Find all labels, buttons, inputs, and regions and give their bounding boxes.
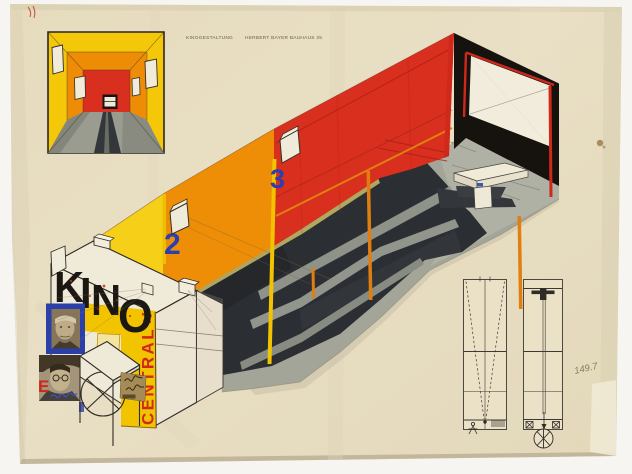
svg-text:HERBERT BAYER BAUHAUS 25: HERBERT BAYER BAUHAUS 25 xyxy=(245,35,322,41)
svg-text:O: O xyxy=(118,290,153,342)
svg-text:E: E xyxy=(38,377,49,396)
svg-text:3: 3 xyxy=(270,164,285,194)
svg-text:KINOGESTALTUNG: KINOGESTALTUNG xyxy=(186,35,233,41)
